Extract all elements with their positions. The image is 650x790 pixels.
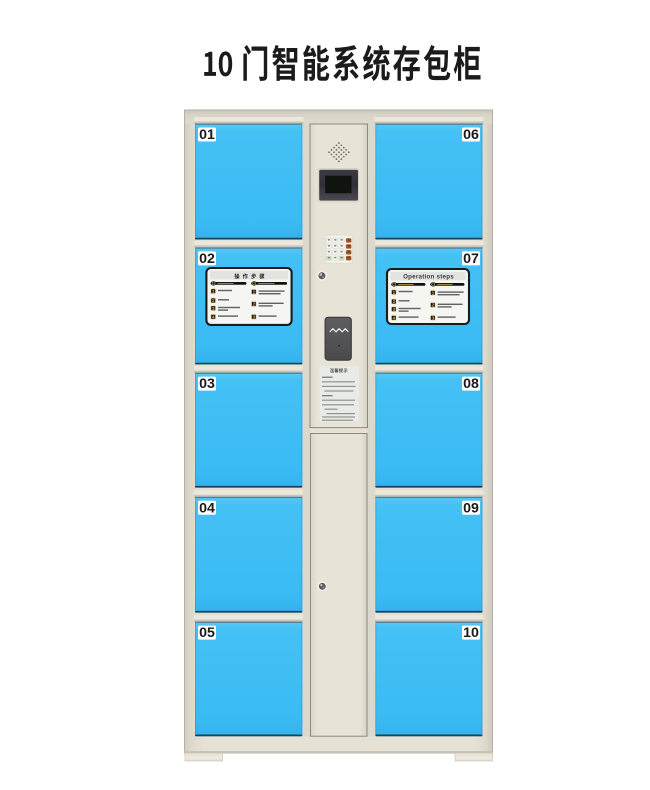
svg-text:01: 01 — [199, 127, 215, 143]
svg-text:06: 06 — [463, 127, 479, 143]
svg-text:07: 07 — [463, 251, 479, 267]
svg-text:09: 09 — [463, 500, 479, 516]
svg-text:03: 03 — [199, 376, 215, 392]
svg-text:10: 10 — [463, 625, 479, 641]
svg-text:08: 08 — [463, 376, 479, 392]
svg-text:04: 04 — [199, 500, 215, 516]
svg-text:Operation steps: Operation steps — [403, 274, 454, 281]
svg-text:02: 02 — [199, 251, 215, 267]
svg-text:05: 05 — [199, 625, 215, 641]
